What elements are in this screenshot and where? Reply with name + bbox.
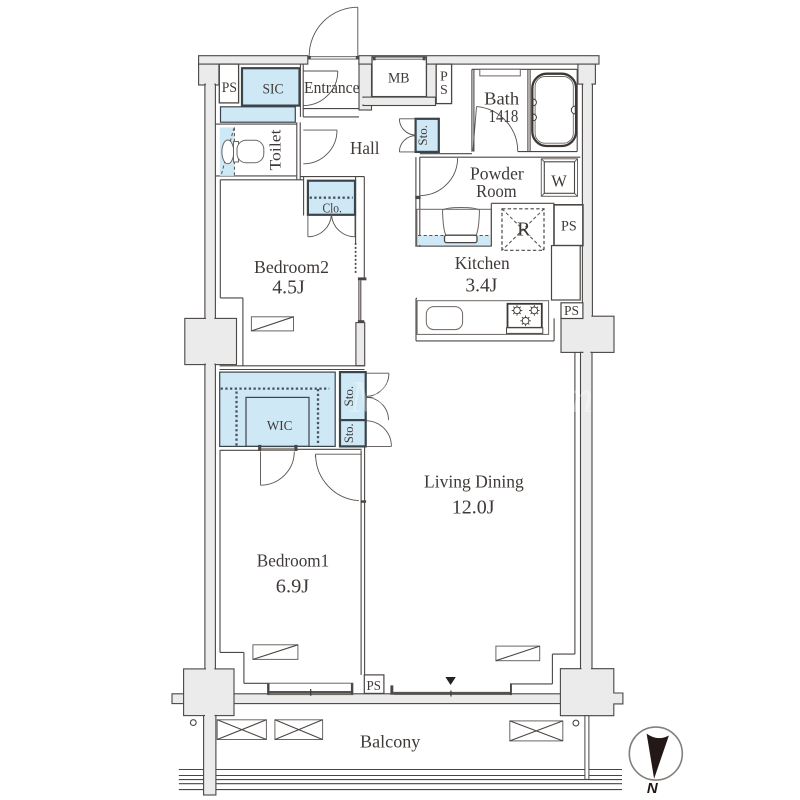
svg-text:PS: PS [367,678,381,693]
svg-text:PS: PS [561,218,577,234]
svg-text:1418: 1418 [489,106,519,126]
svg-text:4.5J: 4.5J [272,277,305,299]
svg-text:Hall: Hall [350,138,380,158]
svg-text:3.4J: 3.4J [465,275,497,297]
svg-text:SIC: SIC [263,82,284,98]
svg-text:Sto.: Sto. [415,125,430,146]
svg-text:Balcony: Balcony [360,732,420,752]
svg-text:MB: MB [388,71,410,87]
svg-text:6.9J: 6.9J [276,576,309,598]
svg-text:PS: PS [222,80,237,96]
svg-text:Entrance: Entrance [304,78,360,97]
svg-text:R: R [517,219,531,241]
svg-text:N: N [647,780,659,797]
svg-text:Toilet: Toilet [268,129,285,171]
svg-text:12.0J: 12.0J [452,497,495,519]
svg-text:Room: Room [476,181,517,201]
svg-text:Bedroom2: Bedroom2 [254,257,329,277]
svg-text:Sto.: Sto. [342,423,356,443]
svg-text:PS: PS [564,303,579,318]
svg-text:Kitchen: Kitchen [455,253,510,273]
svg-text:Bedroom1: Bedroom1 [257,551,330,571]
svg-text:Living Dining: Living Dining [424,472,524,492]
svg-text:W: W [551,172,567,191]
svg-text:MGRoom: MGRoom [349,371,607,422]
svg-text:Clo.: Clo. [322,202,342,217]
svg-text:WIC: WIC [267,419,293,434]
svg-text:S: S [440,83,448,98]
